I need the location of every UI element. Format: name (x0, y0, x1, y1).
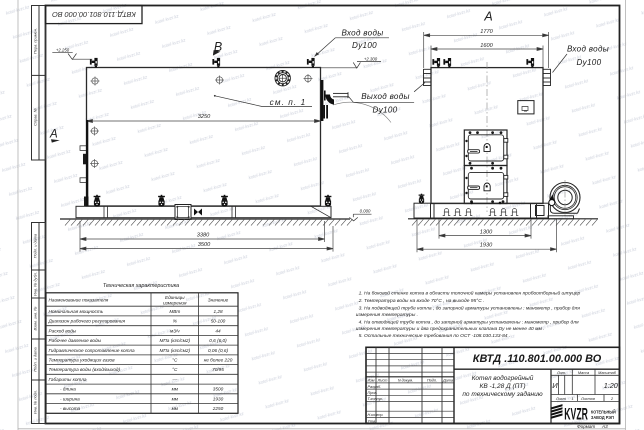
svg-text:Изм: Изм (367, 378, 374, 382)
svg-text:Номинальная мощность: Номинальная мощность (49, 309, 104, 314)
svg-text:Вход воды: Вход воды (342, 29, 384, 38)
svg-text:2250: 2250 (212, 406, 224, 411)
svg-text:Вход воды: Вход воды (567, 45, 609, 54)
svg-text:1600: 1600 (480, 43, 493, 49)
svg-text:МПа (кгс/см2): МПа (кгс/см2) (159, 348, 190, 353)
svg-text:Листов: Листов (580, 397, 595, 401)
svg-text:не более 220: не более 220 (204, 358, 233, 363)
svg-text:мм: мм (172, 387, 179, 392)
svg-text:1. На боковой стенке котла: 1. На боковой стенке котла в области топ… (359, 290, 581, 297)
svg-text:Техническая характеристика: Техническая характеристика (103, 283, 179, 289)
svg-text:N докум.: N докум. (398, 378, 413, 382)
svg-text:1930: 1930 (480, 242, 493, 248)
svg-text:А: А (49, 129, 58, 141)
svg-text:Лист: Лист (555, 397, 566, 401)
svg-text:- высота: - высота (60, 406, 81, 411)
svg-text:мм: мм (172, 397, 179, 402)
svg-text:Инв. № дубл.: Инв. № дубл. (33, 272, 38, 296)
svg-text:измерения температуры и два: измерения температуры и два предохраните… (356, 326, 545, 332)
svg-text:ЗАВОД РЭП: ЗАВОД РЭП (591, 415, 615, 420)
svg-text:%: % (173, 319, 177, 324)
svg-text:1930: 1930 (213, 397, 224, 402)
svg-text:измерения: измерения (163, 301, 187, 306)
svg-text:Разраб.: Разраб. (368, 385, 382, 389)
svg-text:Dy100: Dy100 (352, 41, 377, 50)
svg-text:Лист: Лист (377, 378, 388, 382)
svg-text:50-100: 50-100 (211, 319, 226, 324)
svg-text:м3/ч: м3/ч (170, 328, 180, 333)
svg-text:3. На подводящей трубе кот: 3. На подводящей трубе котла , до запорн… (359, 304, 581, 311)
svg-text:- ширина: - ширина (60, 397, 80, 402)
svg-text:3250: 3250 (198, 114, 211, 120)
svg-text:Утв.: Утв. (368, 419, 377, 423)
svg-text:Формат: Формат (577, 424, 595, 429)
svg-text:Температура уходящих газов: Температура уходящих газов (49, 358, 116, 363)
svg-text:Наименование показателя: Наименование показателя (49, 297, 109, 302)
svg-text:+2.300: +2.300 (364, 56, 378, 61)
svg-text:Значение: Значение (208, 297, 229, 302)
svg-text:Дата: Дата (442, 378, 453, 382)
svg-text:Инв. № подл.: Инв. № подл. (33, 390, 38, 414)
svg-text:Н.контр.: Н.контр. (368, 413, 384, 417)
svg-text:измерения температуры .: измерения температуры . (356, 313, 418, 318)
svg-text:Подп.: Подп. (427, 378, 437, 382)
svg-text:+2.250: +2.250 (56, 48, 70, 53)
svg-text:2. Температура воды на вхо: 2. Температура воды на входе 70°С , на в… (358, 298, 485, 304)
svg-text:КОТЕЛЬНЫЙ: КОТЕЛЬНЫЙ (591, 407, 616, 414)
svg-text:по техническому заданию: по техническому заданию (462, 390, 542, 398)
svg-text:1:20: 1:20 (604, 381, 618, 390)
svg-text:КВТД .110.801.00.000 ВО: КВТД .110.801.00.000 ВО (473, 353, 602, 365)
svg-text:1300: 1300 (480, 229, 493, 235)
svg-text:Котел водогрейный: Котел водогрейный (472, 374, 534, 382)
svg-text:Т.контр.: Т.контр. (368, 397, 383, 401)
svg-text:0,6 (6,0): 0,6 (6,0) (209, 338, 227, 343)
svg-text:44: 44 (215, 328, 221, 333)
svg-text:1,28: 1,28 (213, 309, 223, 314)
svg-text:Справ. №: Справ. № (33, 107, 38, 125)
svg-text:70/95: 70/95 (212, 367, 224, 372)
svg-text:Единицы: Единицы (165, 295, 185, 300)
svg-text:°С: °С (172, 358, 178, 363)
svg-text:КВ -1,28 Д (ПТ): КВ -1,28 Д (ПТ) (480, 383, 526, 390)
svg-text:- длина: - длина (60, 387, 76, 392)
svg-text:мм: мм (172, 406, 179, 411)
svg-text:Перв. примен.: Перв. примен. (33, 28, 38, 54)
svg-text:KVZR: KVZR (564, 404, 588, 423)
svg-text:3380: 3380 (197, 232, 210, 238)
svg-text:МВт: МВт (169, 309, 180, 314)
svg-text:Рабочее давление воды: Рабочее давление воды (49, 338, 102, 343)
svg-text:МПа (кгс/см2): МПа (кгс/см2) (159, 338, 190, 343)
svg-text:А3: А3 (601, 424, 608, 429)
svg-text:Масса: Масса (578, 371, 589, 375)
svg-text:Подп. и дата: Подп. и дата (33, 233, 38, 258)
svg-text:Гидравлическое сопротивление к: Гидравлическое сопротивление котла (49, 348, 136, 353)
svg-text:1: 1 (572, 397, 574, 401)
svg-text:—: — (171, 377, 177, 382)
svg-text:Лит.: Лит. (556, 371, 566, 375)
svg-text:см. п. 1: см. п. 1 (270, 98, 307, 107)
svg-text:Диапазон рабочего регулировани: Диапазон рабочего регулирования (48, 319, 126, 324)
svg-text:А: А (483, 9, 492, 23)
svg-text:0.000: 0.000 (360, 209, 371, 214)
svg-text:Dy100: Dy100 (373, 106, 398, 115)
svg-text:Габариты котла: Габариты котла (49, 377, 87, 382)
svg-text:3500: 3500 (213, 387, 224, 392)
svg-text:Взам. инв. №: Взам. инв. № (33, 306, 38, 331)
svg-text:4. На отводящей трубе котл: 4. На отводящей трубе котла , до запорно… (359, 318, 579, 325)
svg-text:°С: °С (172, 367, 178, 372)
svg-text:1770: 1770 (480, 29, 493, 35)
svg-text:Подп. и дата: Подп. и дата (33, 346, 38, 371)
svg-text:Dy100: Dy100 (577, 58, 602, 67)
svg-text:Пров.: Пров. (368, 391, 378, 395)
svg-text:Температура воды (вход/выход): Температура воды (вход/выход) (49, 367, 121, 372)
svg-text:Расход воды: Расход воды (49, 328, 77, 333)
svg-text:Выход воды: Выход воды (361, 92, 410, 101)
svg-text:3500: 3500 (198, 242, 211, 248)
svg-text:КВТД.110.801.00.000 ВО: КВТД.110.801.00.000 ВО (52, 10, 136, 19)
svg-text:5. Остальные технические тр: 5. Остальные технические требования по О… (359, 333, 511, 339)
svg-text:Масштаб: Масштаб (598, 371, 617, 375)
svg-text:И: И (552, 381, 558, 390)
svg-text:0,06 (0,6): 0,06 (0,6) (208, 348, 229, 353)
